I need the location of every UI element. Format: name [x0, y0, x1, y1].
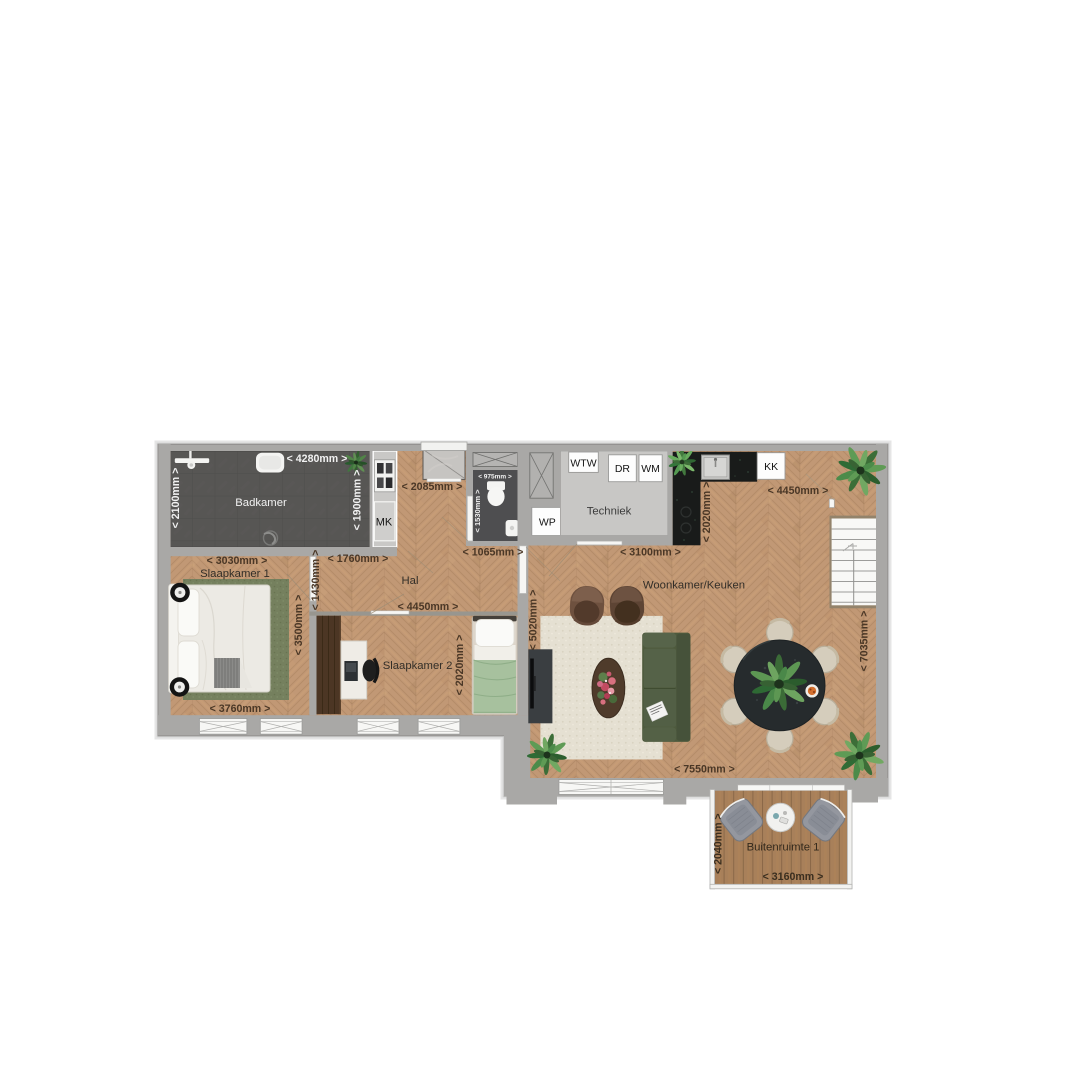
- svg-text:< 7550mm >: < 7550mm >: [674, 764, 735, 776]
- svg-text:Buitenruimte 1: Buitenruimte 1: [747, 842, 820, 854]
- svg-text:< 1760mm >: < 1760mm >: [328, 553, 389, 565]
- svg-text:< 1065mm >: < 1065mm >: [463, 547, 524, 559]
- svg-text:Badkamer: Badkamer: [235, 497, 287, 509]
- svg-text:< 1530mm >: < 1530mm >: [473, 489, 482, 533]
- svg-text:< 2020mm >: < 2020mm >: [701, 482, 713, 543]
- svg-text:WP: WP: [539, 517, 556, 529]
- svg-text:< 2020mm >: < 2020mm >: [454, 635, 466, 696]
- svg-text:< 4450mm >: < 4450mm >: [398, 601, 459, 613]
- svg-text:< 2040mm >: < 2040mm >: [713, 813, 725, 874]
- svg-text:< 4450mm >: < 4450mm >: [768, 485, 829, 497]
- svg-text:< 3500mm >: < 3500mm >: [293, 595, 305, 656]
- svg-text:Techniek: Techniek: [587, 506, 632, 518]
- svg-text:KK: KK: [764, 461, 778, 473]
- svg-text:< 3030mm >: < 3030mm >: [207, 555, 268, 567]
- svg-text:MK: MK: [376, 517, 393, 529]
- svg-text:Slaapkamer 1: Slaapkamer 1: [200, 568, 270, 580]
- svg-text:WTW: WTW: [570, 458, 596, 470]
- svg-text:Woonkamer/Keuken: Woonkamer/Keuken: [643, 580, 745, 592]
- svg-text:Hal: Hal: [402, 575, 419, 587]
- svg-text:< 2085mm >: < 2085mm >: [402, 481, 463, 493]
- svg-text:< 2100mm >: < 2100mm >: [170, 468, 182, 529]
- svg-text:< 3160mm >: < 3160mm >: [763, 871, 824, 883]
- svg-text:Slaapkamer 2: Slaapkamer 2: [383, 660, 453, 672]
- svg-text:< 1900mm >: < 1900mm >: [352, 470, 364, 531]
- svg-text:DR: DR: [615, 463, 631, 475]
- svg-text:< 975mm >: < 975mm >: [478, 474, 512, 481]
- svg-text:< 3100mm >: < 3100mm >: [620, 547, 681, 559]
- svg-text:< 1430mm >: < 1430mm >: [310, 550, 322, 611]
- svg-text:WM: WM: [641, 463, 660, 475]
- svg-text:< 7035mm >: < 7035mm >: [859, 611, 871, 672]
- svg-text:< 4280mm >: < 4280mm >: [287, 453, 348, 465]
- svg-text:< 5020mm >: < 5020mm >: [528, 590, 540, 651]
- svg-text:< 3760mm >: < 3760mm >: [210, 703, 271, 715]
